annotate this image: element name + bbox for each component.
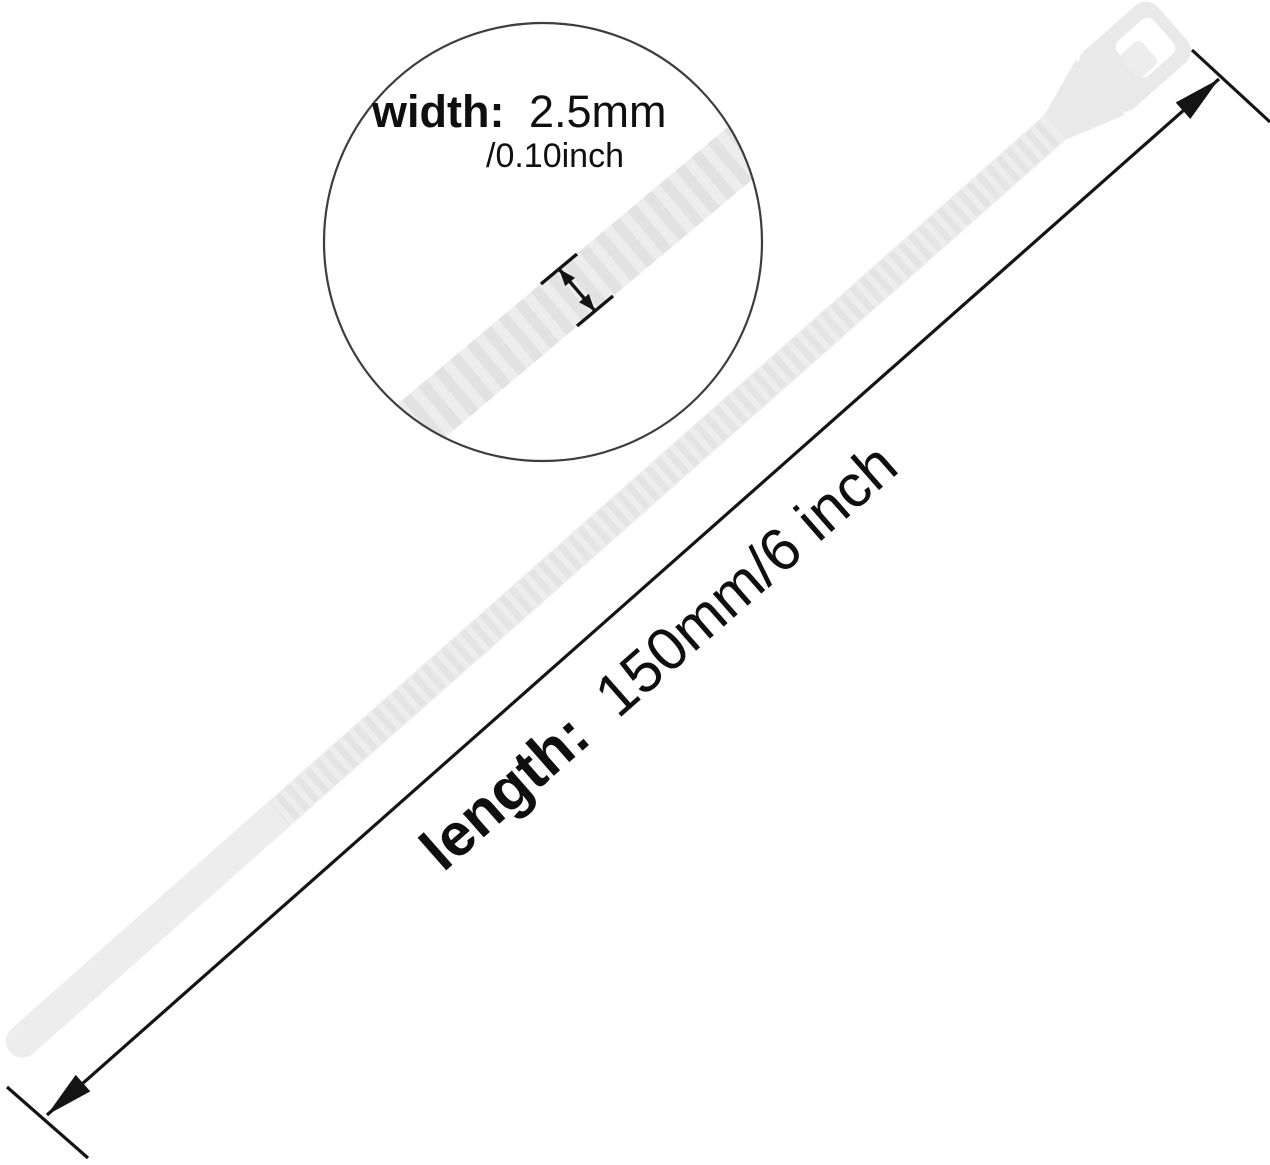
width-value-imperial: /0.10inch (486, 137, 624, 175)
width-label: width: (371, 86, 504, 137)
width-value-metric: 2.5mm (529, 86, 667, 137)
product-dimension-diagram: length: 150mm/6 inch (0, 0, 1270, 1165)
